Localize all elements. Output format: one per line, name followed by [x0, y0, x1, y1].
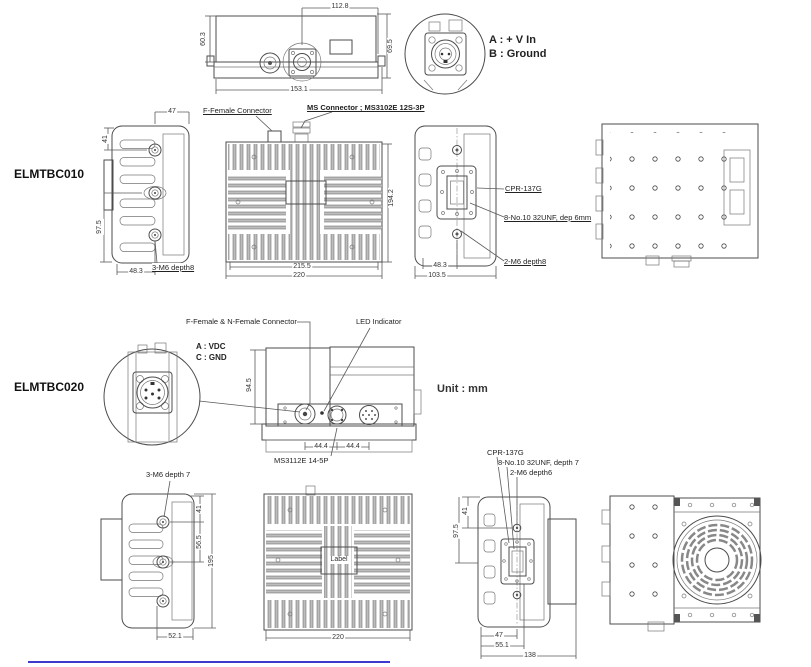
product-name-elmtbc010: ELMTBC010	[14, 167, 84, 181]
dim-rear-194-2-010: 194.2	[388, 188, 396, 208]
drawing-lineart	[0, 0, 811, 667]
dim-side-48-3-010: 48.3	[128, 268, 144, 276]
label-unf-020: 8-No.10 32UNF, depth 7	[498, 458, 579, 467]
elmtbc020-fan-view-drawing	[602, 496, 761, 631]
label-plate-020: Label	[329, 556, 348, 564]
dim-top-width-010: 112.8	[331, 3, 350, 11]
dim-right-103-5-010: 103.5	[427, 272, 447, 280]
dim-right-55-1-020: 55.1	[494, 642, 510, 650]
label-cpr-137g-010: CPR-137G	[505, 184, 542, 193]
label-3-m6-020: 3-M6 depth 7	[146, 470, 190, 479]
dim-top-base-010: 153.1	[289, 86, 309, 94]
label-f-female-connector-010: F-Female Connector	[203, 106, 272, 115]
dim-side-47-010: 47	[167, 108, 177, 116]
detail-note-pin-c-020: C : GND	[196, 352, 227, 363]
elmtbc010-right-side-view-drawing	[415, 126, 504, 279]
product-name-elmtbc020: ELMTBC020	[14, 380, 84, 394]
dim-right-41-020: 41	[462, 506, 470, 516]
dim-right-138-020: 138	[523, 652, 537, 660]
label-ffnf-connector-020: F-Female & N-Female Connector	[186, 317, 297, 326]
dim-side-41-010: 41	[102, 134, 110, 144]
dim-top-44-4b-020: 44.4	[345, 443, 361, 451]
label-cpr-137g-020: CPR-137G	[487, 448, 524, 457]
dim-right-97-5-020: 97.5	[453, 523, 461, 539]
label-ms3112e-020: MS3112E 14-5P	[274, 456, 328, 465]
dim-side-195-020: 195	[208, 554, 216, 568]
elmtbc020-right-side-view-drawing	[455, 457, 576, 659]
elmtbc010-connector-detail-drawing	[405, 14, 485, 94]
elmtbc010-left-side-view-drawing	[100, 112, 189, 275]
elmtbc020-top-view-drawing	[250, 322, 421, 456]
elmtbc010-front-view-drawing	[596, 124, 758, 267]
unit-note: Unit : mm	[437, 383, 488, 395]
dim-side-97-5-010: 97.5	[96, 219, 104, 235]
label-3-m6-010: 3-M6 depth8	[152, 263, 194, 272]
dim-right-47-020: 47	[494, 632, 504, 640]
detail-note-pin-b-010: B : Ground	[489, 47, 546, 61]
dim-top-height-left-010: 60.3	[200, 31, 208, 47]
drawing-sheet: ELMTBC010 112.8 60.3 69.5 153.1 A : + V …	[0, 0, 811, 667]
dim-rear-220-020: 220	[331, 634, 345, 642]
dim-right-48-3-010: 48.3	[432, 262, 448, 270]
detail-note-pin-a-010: A : + V In	[489, 33, 536, 47]
label-unf-010: 8-No.10 32UNF, dep 6mm	[504, 213, 591, 222]
dim-side-52-1-020: 52.1	[167, 633, 183, 641]
label-led-indicator-020: LED Indicator	[356, 317, 401, 326]
dim-side-41-020: 41	[196, 504, 204, 514]
dim-top-44-4a-020: 44.4	[313, 443, 329, 451]
label-2-m6-020: 2-M6 depth6	[510, 468, 552, 477]
elmtbc010-top-view-drawing	[205, 8, 391, 94]
dim-rear-220-010: 220	[292, 272, 306, 280]
label-2-m6-010: 2-M6 depth8	[504, 257, 546, 266]
footer-rule	[28, 661, 390, 663]
elmtbc010-rear-view-drawing	[226, 112, 392, 279]
label-ms-connector-010: MS Connector ; MS3102E 12S-3P	[307, 103, 425, 112]
dim-rear-215-5-010: 215.5	[292, 263, 312, 271]
dim-side-56-5-020: 56.5	[196, 534, 204, 550]
dim-top-94-5-020: 94.5	[246, 377, 254, 393]
detail-note-pin-a-020: A : VDC	[196, 341, 225, 352]
dim-top-height-right-010: 69.5	[387, 38, 395, 54]
